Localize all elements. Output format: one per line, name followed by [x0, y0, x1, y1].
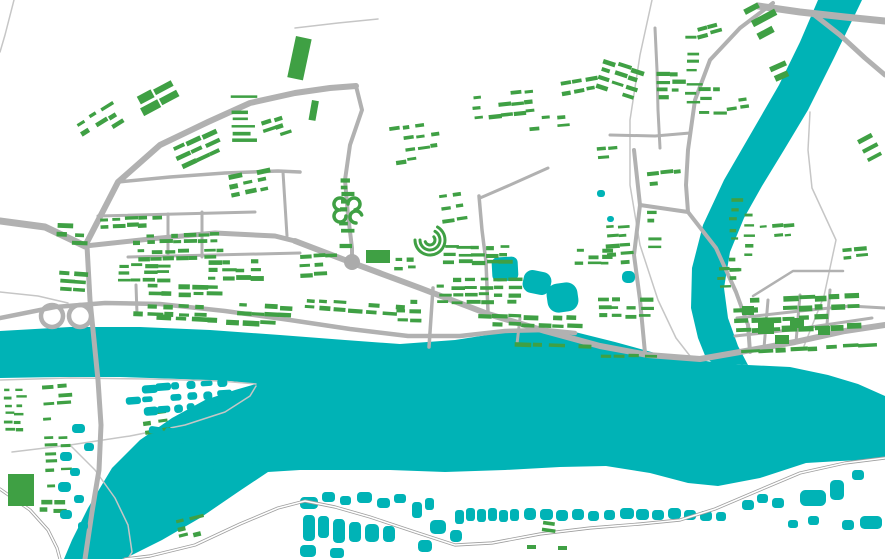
- building: [47, 484, 55, 487]
- building: [209, 268, 218, 272]
- large-building: [742, 306, 754, 315]
- island-water-building: [170, 394, 181, 401]
- building: [611, 306, 618, 309]
- paddy: [455, 510, 464, 524]
- building: [499, 260, 513, 264]
- building: [15, 389, 22, 391]
- building: [75, 233, 84, 237]
- island-water-building: [148, 455, 160, 464]
- building: [108, 112, 117, 120]
- building: [72, 241, 88, 246]
- building: [614, 70, 628, 78]
- building: [45, 443, 58, 446]
- building: [145, 264, 158, 268]
- building: [731, 198, 743, 202]
- building: [831, 304, 845, 310]
- building: [862, 142, 879, 153]
- interchange-loop: [69, 305, 91, 327]
- building: [457, 216, 468, 221]
- building: [437, 285, 444, 288]
- building-cluster: [75, 101, 125, 145]
- building: [275, 123, 284, 130]
- building: [799, 305, 813, 311]
- west-v3: [283, 172, 287, 236]
- building: [750, 298, 760, 303]
- building: [729, 258, 735, 262]
- curved-building: [348, 198, 360, 210]
- building: [467, 300, 481, 304]
- central-meander: [345, 86, 362, 262]
- curved-building: [420, 231, 440, 250]
- building: [614, 355, 625, 358]
- building-cluster: [56, 223, 88, 245]
- paddy: [772, 498, 784, 508]
- island-water-building: [214, 444, 224, 452]
- building: [237, 311, 252, 316]
- building-cluster: [647, 211, 661, 248]
- building: [243, 320, 260, 326]
- curved-building: [334, 210, 346, 222]
- building-cluster: [471, 89, 535, 121]
- paddy: [716, 512, 726, 521]
- building: [612, 80, 624, 87]
- building: [625, 315, 636, 319]
- building: [257, 177, 266, 182]
- island-water-building: [142, 396, 153, 402]
- building: [243, 180, 253, 185]
- building: [171, 234, 178, 238]
- paddy: [800, 490, 826, 506]
- building: [14, 413, 23, 416]
- building: [814, 314, 828, 320]
- building-cluster: [299, 253, 338, 278]
- building: [208, 285, 218, 289]
- building: [175, 150, 191, 161]
- large-building: [527, 545, 536, 549]
- building: [729, 217, 737, 220]
- large-building: [366, 250, 390, 263]
- curved-building: [425, 237, 435, 245]
- building: [650, 181, 658, 186]
- building: [575, 262, 583, 265]
- building: [621, 251, 634, 255]
- building: [165, 250, 175, 254]
- building-cluster: [134, 79, 179, 116]
- building: [494, 286, 503, 290]
- building: [16, 404, 22, 407]
- building-cluster: [657, 72, 686, 100]
- building: [325, 253, 337, 257]
- building: [509, 286, 522, 289]
- building: [526, 109, 535, 113]
- building: [492, 314, 508, 319]
- building: [465, 286, 477, 289]
- pond: [622, 271, 635, 283]
- building-cluster: [41, 383, 74, 420]
- building: [410, 319, 421, 323]
- building: [207, 291, 223, 295]
- building: [508, 314, 521, 318]
- building: [383, 311, 397, 315]
- building: [415, 123, 424, 128]
- building: [405, 147, 415, 152]
- building: [127, 222, 139, 227]
- building: [118, 279, 131, 282]
- building: [437, 300, 448, 303]
- building: [45, 452, 56, 455]
- island-water-building: [217, 401, 232, 408]
- building: [524, 90, 533, 94]
- building: [341, 178, 350, 182]
- building-cluster: [260, 114, 292, 141]
- building: [783, 296, 799, 302]
- building: [542, 115, 550, 119]
- island-water-building: [236, 448, 246, 456]
- building: [334, 300, 347, 304]
- building-cluster: [4, 389, 27, 432]
- building: [4, 389, 9, 392]
- building: [459, 259, 473, 263]
- building: [407, 157, 416, 161]
- building: [657, 81, 670, 84]
- building: [756, 26, 774, 40]
- building: [236, 275, 251, 280]
- building: [54, 500, 65, 504]
- building-cluster: [58, 270, 88, 292]
- ne-cluster-h: [610, 133, 690, 136]
- building: [727, 106, 737, 111]
- building: [758, 349, 773, 353]
- building: [745, 244, 753, 248]
- building: [648, 246, 661, 248]
- building: [618, 62, 632, 70]
- building: [699, 87, 711, 91]
- building: [442, 218, 455, 223]
- building: [192, 317, 209, 322]
- building: [511, 101, 524, 106]
- building: [687, 53, 699, 56]
- building: [40, 507, 48, 511]
- building: [95, 117, 108, 128]
- building: [474, 116, 483, 120]
- building: [791, 346, 808, 351]
- building: [4, 397, 12, 400]
- paddy: [852, 470, 864, 480]
- island-water-building: [72, 424, 85, 433]
- building: [657, 87, 668, 91]
- paddy: [425, 498, 434, 510]
- building: [744, 253, 752, 256]
- building: [498, 101, 511, 106]
- island-water-building: [158, 468, 168, 476]
- west-h1: [98, 212, 255, 216]
- island-water-building: [74, 495, 84, 503]
- building: [479, 292, 489, 295]
- building: [439, 294, 452, 297]
- building: [602, 255, 612, 259]
- building: [574, 88, 585, 94]
- building: [557, 123, 570, 127]
- building-cluster: [604, 224, 634, 266]
- building: [687, 101, 700, 103]
- building: [625, 85, 638, 93]
- building-cluster: [100, 215, 162, 229]
- building: [640, 298, 653, 302]
- building: [717, 277, 725, 280]
- building: [300, 254, 312, 259]
- island-water-building: [70, 468, 80, 476]
- paddy: [788, 520, 798, 528]
- building: [501, 245, 510, 248]
- building: [299, 264, 310, 267]
- building: [194, 292, 204, 295]
- building: [738, 97, 746, 101]
- paddy: [394, 494, 406, 503]
- building: [232, 125, 255, 127]
- building: [560, 80, 571, 86]
- building: [119, 265, 128, 268]
- building-cluster: [760, 222, 796, 238]
- building: [89, 111, 97, 118]
- building: [699, 111, 709, 114]
- building: [515, 342, 532, 347]
- building: [628, 354, 638, 357]
- paddy: [330, 548, 344, 558]
- building: [492, 322, 502, 327]
- building: [163, 305, 173, 310]
- building: [478, 314, 492, 319]
- west-v4: [136, 285, 137, 314]
- building: [233, 118, 248, 121]
- building-cluster: [394, 257, 415, 270]
- island-water-building: [252, 458, 261, 465]
- building: [210, 239, 217, 242]
- building: [396, 258, 403, 261]
- building: [179, 313, 189, 317]
- building: [41, 500, 52, 505]
- building: [209, 148, 220, 156]
- island-water-building: [187, 392, 197, 400]
- building: [416, 135, 425, 139]
- building: [533, 343, 542, 347]
- plaza: [344, 254, 360, 270]
- paddy: [757, 494, 768, 503]
- paddy: [365, 524, 379, 542]
- building: [441, 206, 451, 211]
- building: [443, 260, 454, 264]
- building: [508, 278, 522, 282]
- building: [488, 114, 502, 120]
- building: [430, 143, 437, 148]
- southwest-thin: [0, 292, 68, 303]
- paddy: [604, 510, 615, 520]
- building: [204, 249, 216, 252]
- building: [190, 145, 202, 154]
- building: [408, 265, 416, 268]
- large-building: [309, 100, 319, 121]
- building: [647, 171, 659, 176]
- building: [205, 138, 221, 148]
- pond: [597, 190, 605, 197]
- building: [232, 111, 248, 115]
- building: [612, 314, 622, 317]
- island-water-building: [226, 460, 236, 468]
- paddy: [450, 530, 462, 542]
- building-cluster: [842, 246, 868, 260]
- island-water-building: [126, 396, 142, 405]
- building: [444, 253, 456, 256]
- building-cluster: [744, 214, 755, 256]
- building-cluster: [439, 191, 468, 223]
- building: [229, 183, 238, 190]
- building: [252, 312, 265, 316]
- building: [769, 60, 787, 72]
- building: [100, 101, 114, 111]
- building: [61, 468, 72, 471]
- paddy: [377, 498, 390, 508]
- building: [340, 244, 352, 248]
- paddy: [808, 516, 819, 525]
- building: [730, 276, 737, 280]
- large-building: [775, 335, 789, 344]
- building: [783, 223, 794, 228]
- building: [598, 155, 609, 159]
- building: [57, 400, 71, 404]
- building: [131, 278, 141, 281]
- building: [731, 208, 738, 211]
- building: [772, 223, 783, 228]
- building: [597, 146, 606, 150]
- island-water-building: [155, 382, 171, 391]
- building: [195, 305, 204, 310]
- building-cluster: [389, 120, 443, 165]
- island-water-building: [168, 450, 178, 458]
- building: [222, 268, 236, 271]
- building: [333, 307, 345, 312]
- building: [394, 267, 403, 270]
- building-cluster: [560, 75, 600, 96]
- building: [161, 291, 171, 296]
- building: [685, 36, 696, 39]
- building-cluster: [118, 263, 171, 282]
- building: [687, 60, 699, 63]
- building: [58, 223, 74, 228]
- building: [601, 355, 611, 358]
- building: [606, 225, 614, 228]
- building: [112, 218, 120, 221]
- building: [80, 128, 90, 137]
- building-cluster: [595, 57, 646, 101]
- building: [45, 468, 54, 472]
- building: [368, 303, 379, 308]
- island-water-building: [180, 465, 189, 472]
- building-cluster: [148, 284, 223, 298]
- paddy: [652, 510, 664, 520]
- building: [431, 132, 440, 137]
- building: [731, 237, 738, 239]
- building: [847, 323, 862, 329]
- building-cluster: [443, 245, 513, 265]
- building: [509, 294, 521, 298]
- island-water-building: [78, 522, 88, 530]
- building: [264, 312, 279, 317]
- building: [231, 95, 258, 98]
- building: [147, 240, 155, 244]
- building: [300, 273, 313, 278]
- building: [157, 279, 170, 283]
- paddy: [540, 509, 553, 520]
- building: [736, 328, 751, 332]
- building: [501, 112, 513, 117]
- building: [138, 249, 145, 252]
- island-water-building: [248, 440, 257, 447]
- paddy: [830, 480, 844, 500]
- building: [459, 254, 473, 257]
- building: [509, 322, 522, 326]
- building: [216, 249, 223, 253]
- large-building: [818, 326, 830, 335]
- building: [61, 444, 71, 447]
- island-water-building: [186, 381, 195, 390]
- building: [740, 104, 749, 109]
- building: [5, 405, 12, 407]
- large-building: [790, 318, 804, 328]
- building: [648, 237, 661, 240]
- building: [867, 152, 882, 162]
- paddy: [499, 510, 508, 522]
- building: [233, 132, 251, 136]
- building: [595, 83, 608, 91]
- building: [714, 112, 727, 115]
- building: [529, 127, 539, 132]
- building: [176, 256, 189, 260]
- building: [179, 304, 189, 308]
- building: [608, 146, 617, 150]
- building: [647, 211, 657, 214]
- island-water-building: [157, 405, 171, 413]
- building: [599, 313, 607, 317]
- building: [101, 225, 109, 229]
- building: [734, 318, 748, 323]
- building: [808, 346, 818, 351]
- building: [481, 278, 488, 281]
- building: [674, 169, 681, 174]
- building: [232, 138, 257, 142]
- building: [226, 320, 239, 326]
- building: [251, 268, 261, 271]
- building: [553, 315, 562, 320]
- paddy: [588, 511, 599, 521]
- building: [189, 256, 198, 260]
- building: [598, 298, 609, 302]
- building-cluster: [44, 436, 72, 488]
- building: [16, 428, 23, 431]
- building: [451, 286, 465, 290]
- building-cluster: [597, 145, 618, 159]
- building: [572, 78, 582, 83]
- building: [843, 256, 851, 260]
- building: [57, 384, 66, 389]
- building: [60, 279, 75, 284]
- paddy: [318, 516, 329, 538]
- building: [158, 265, 170, 268]
- building: [152, 250, 163, 254]
- building: [314, 271, 327, 276]
- building: [521, 323, 534, 327]
- building: [775, 348, 785, 353]
- building: [42, 385, 54, 390]
- building: [598, 75, 610, 82]
